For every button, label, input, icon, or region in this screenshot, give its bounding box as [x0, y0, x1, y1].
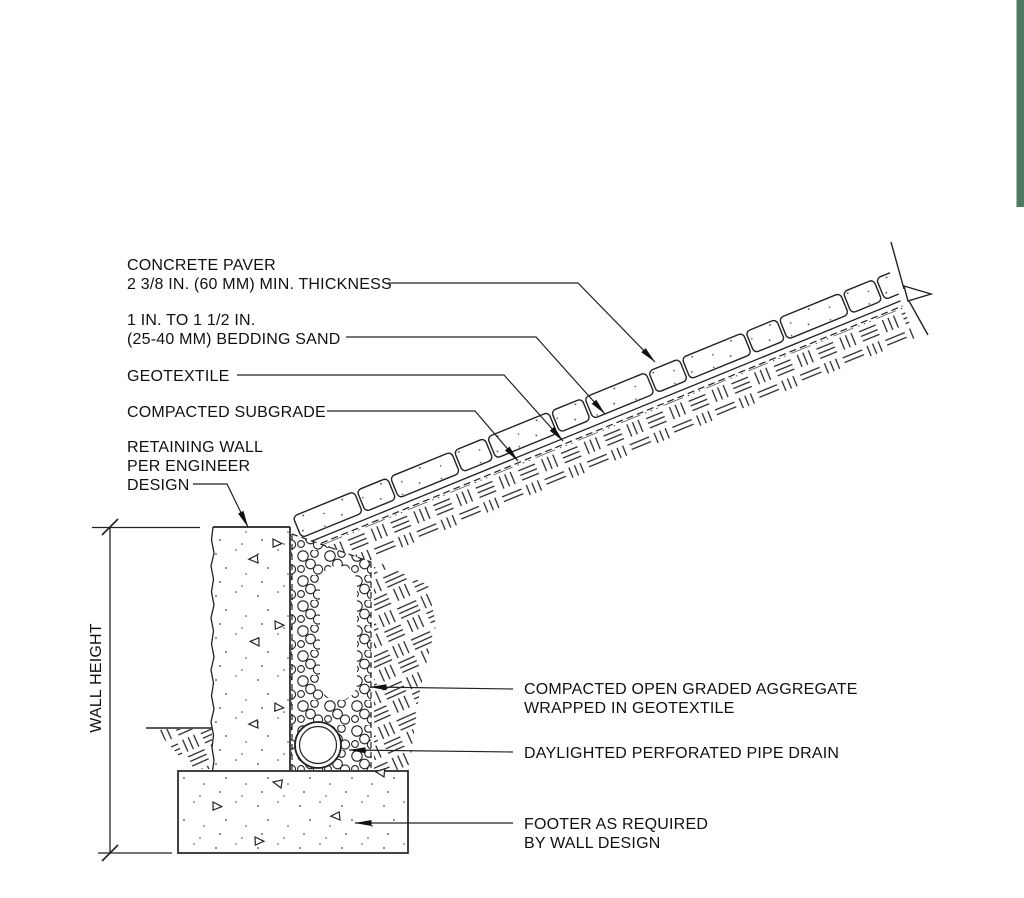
trench-void: [320, 566, 357, 700]
label-bedding-sand-line2: (25-40 MM) BEDDING SAND: [127, 331, 341, 348]
technical-drawing: WALL HEIGHT CONCRETE PAVER 2 3/8 IN. (60…: [0, 0, 1024, 898]
leader-pipe-drain: [349, 750, 513, 752]
label-concrete-paver-line1: CONCRETE PAVER: [127, 257, 276, 274]
paver-slope-assembly: [287, 253, 963, 583]
label-footer-line1: FOOTER AS REQUIRED: [524, 816, 708, 833]
aggregate-trench: [291, 534, 371, 770]
label-bedding-sand-line1: 1 IN. TO 1 1/2 IN.: [127, 312, 255, 329]
label-wall-height: WALL HEIGHT: [88, 623, 105, 733]
paver-block: [454, 438, 493, 472]
geotextile-line: [301, 306, 903, 552]
leader-concrete-paver: [388, 283, 655, 362]
retaining-wall-section: [211, 527, 290, 771]
leader-retaining-wall: [193, 484, 248, 527]
paver-block: [585, 372, 655, 418]
paver-block: [551, 399, 590, 433]
label-concrete-paver-line2: 2 3/8 IN. (60 MM) MIN. THICKNESS: [127, 276, 392, 293]
paver-row: [293, 253, 946, 537]
bedding-sand-line: [300, 301, 900, 546]
soil-hatch-right: [374, 560, 436, 770]
footer-section: [178, 767, 408, 853]
label-pipe-drain: DAYLIGHTED PERFORATED PIPE DRAIN: [524, 745, 839, 762]
paver-block: [648, 359, 687, 393]
label-footer-line2: BY WALL DESIGN: [524, 835, 660, 852]
label-retaining-wall-line2: PER ENGINEER: [127, 458, 250, 475]
subgrade-hatch-band: [307, 307, 916, 581]
label-aggregate-line1: COMPACTED OPEN GRADED AGGREGATE: [524, 681, 858, 698]
label-geotextile: GEOTEXTILE: [127, 368, 229, 385]
paver-block: [746, 319, 785, 353]
drawing-page: WALL HEIGHT CONCRETE PAVER 2 3/8 IN. (60…: [0, 0, 1024, 898]
label-compacted-subgrade: COMPACTED SUBGRADE: [127, 404, 326, 421]
green-sidebar-fragment: [1017, 0, 1024, 207]
perforated-pipe: [295, 722, 341, 768]
label-retaining-wall-line1: RETAINING WALL: [127, 439, 263, 456]
paver-block: [843, 280, 882, 314]
paver-block: [779, 293, 849, 339]
label-aggregate-line2: WRAPPED IN GEOTEXTILE: [524, 700, 734, 717]
label-retaining-wall-line3: DESIGN: [127, 477, 190, 494]
ground-left: [146, 728, 212, 769]
paver-block: [357, 478, 396, 512]
